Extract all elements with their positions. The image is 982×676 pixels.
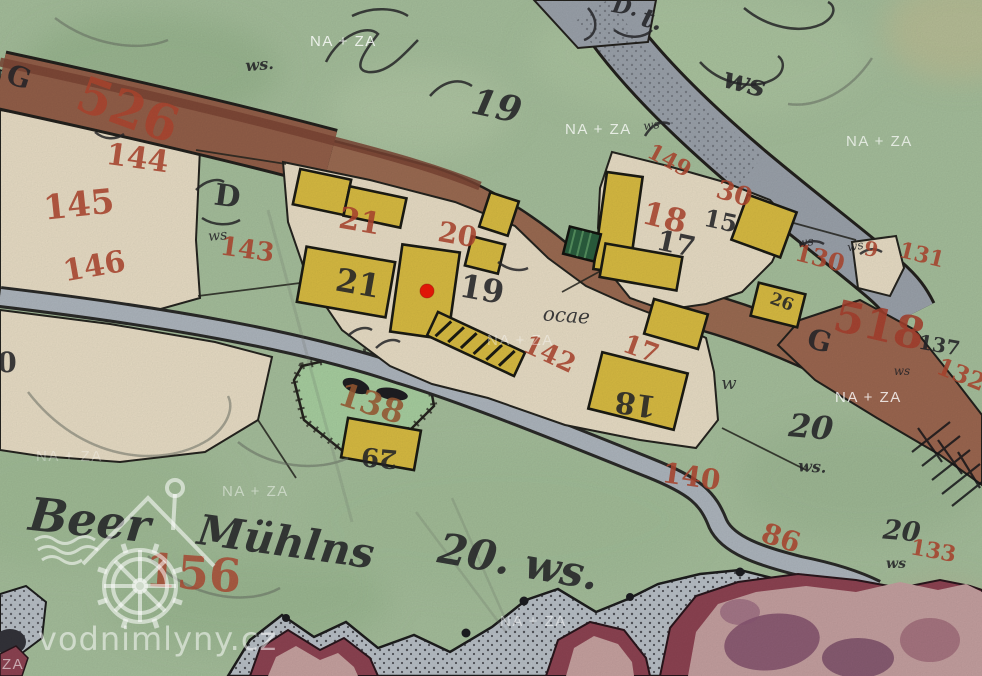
map-viewport[interactable]: 5261441451461432120142171491830130913151… — [0, 0, 982, 676]
watermark-text: NA + ZA — [310, 33, 377, 50]
watermark-text: NA + ZA — [222, 483, 289, 500]
watermark-text: NA + ZA — [565, 121, 632, 138]
watermark-text: NA + ZA — [835, 389, 902, 406]
watermark-text: ZA — [2, 656, 24, 673]
watermark-text: NA + ZA — [487, 332, 554, 349]
logo-text: vodnimlyny.cz — [38, 620, 277, 658]
watermark-text: NA + ZA — [846, 133, 913, 150]
watermark-text: NA + ZA — [500, 613, 567, 630]
watermark-text: NA + ZA — [36, 448, 103, 465]
historical-map-image: 5261441451461432120142171491830130913151… — [0, 0, 982, 676]
